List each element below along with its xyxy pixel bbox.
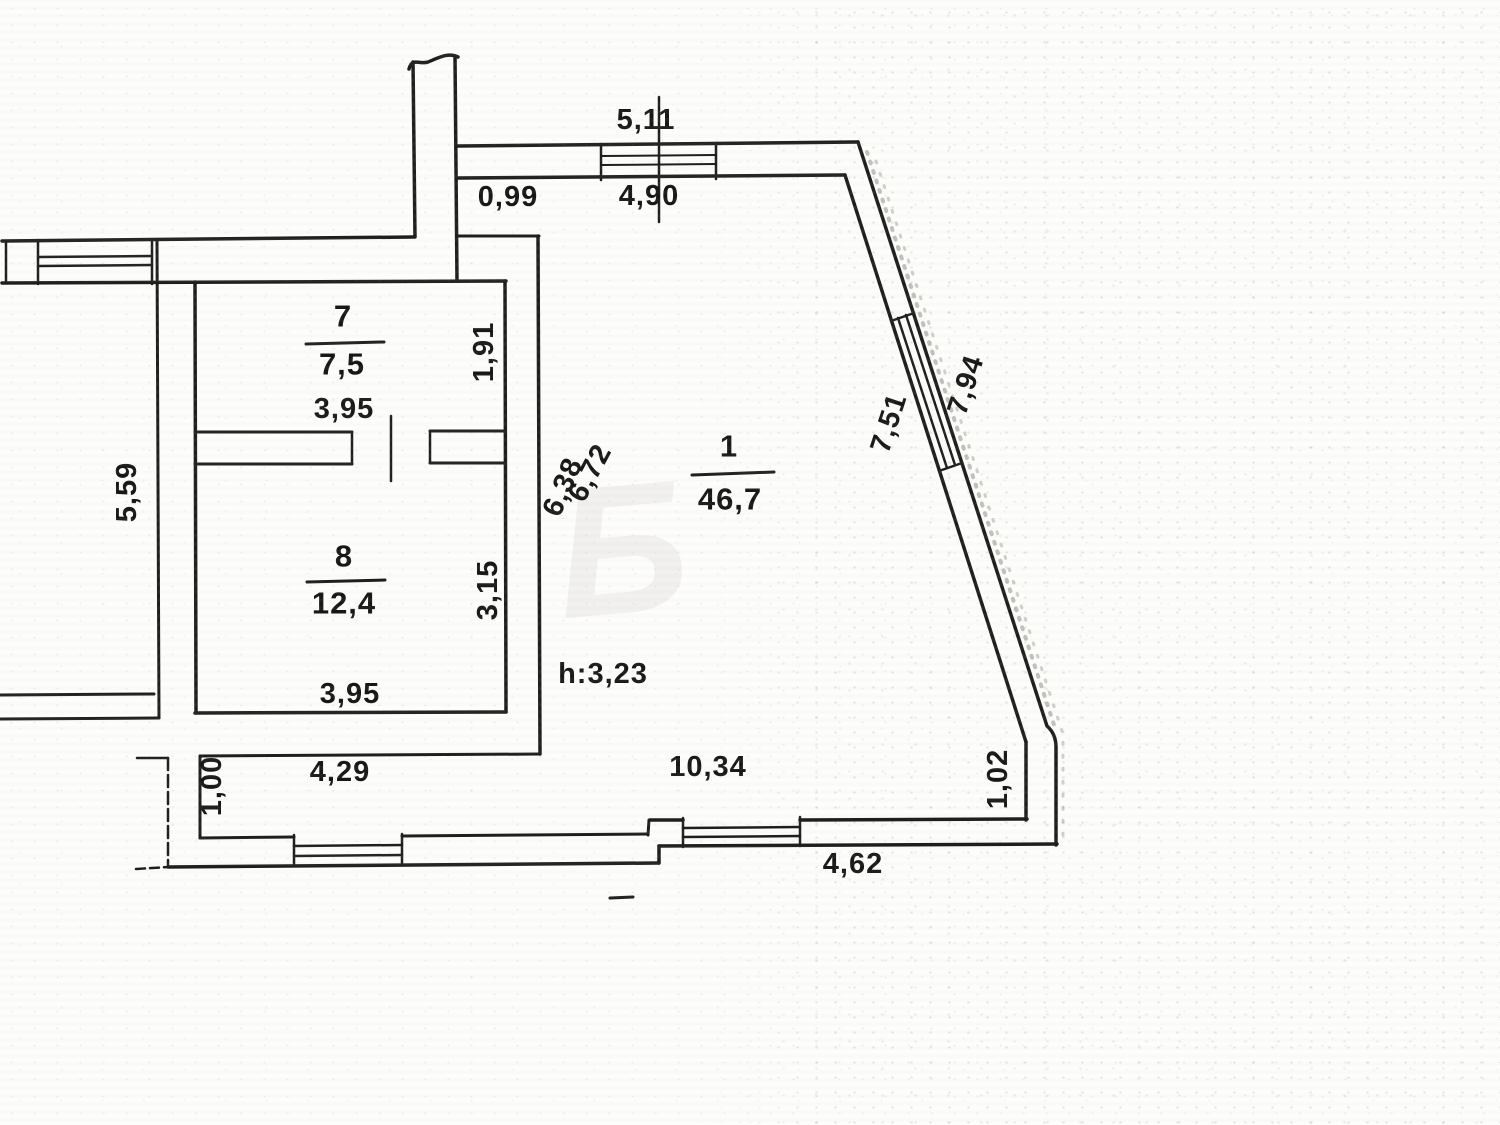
- dimension-label: h:3,23: [558, 658, 648, 690]
- window-glass: [683, 836, 800, 837]
- dimension-label: 3,95: [314, 393, 374, 425]
- outer-wall-top-left: [2, 237, 414, 241]
- dimension-label: 7,51: [864, 389, 913, 456]
- room-fraction-line: [306, 342, 384, 344]
- bottom-inner-left-b: [402, 834, 648, 836]
- dimension-label: 3,15: [472, 560, 504, 620]
- dimension-label: 4,90: [619, 180, 679, 212]
- bottom-inner-right: [800, 819, 1027, 820]
- room-number-label: 7: [334, 299, 352, 334]
- chimney-left: [413, 62, 415, 237]
- dimension-label: 5,59: [111, 462, 143, 522]
- floor-plan-drawing: Б146,777,5812,45,110,994,907,517,941,913…: [0, 0, 1500, 1125]
- room8-bottom-wall: [195, 712, 506, 713]
- inner-wall-top: [2, 281, 506, 283]
- dimension-label: 5,11: [617, 104, 676, 136]
- window-glass: [601, 164, 716, 165]
- neighbor-bottom-inner: [0, 694, 154, 695]
- chimney-right: [455, 56, 457, 281]
- dimension-label: 4,62: [823, 848, 883, 880]
- scan-speckle: [876, 161, 1063, 846]
- room-left-wall: [195, 282, 196, 713]
- bottom-outer-left: [168, 863, 659, 867]
- top-wall-outer: [457, 142, 858, 146]
- neighbor-bottom-outer: [0, 718, 159, 719]
- scan-page: Б146,777,5812,45,110,994,907,517,941,913…: [0, 0, 1500, 1125]
- window-glass: [294, 845, 402, 846]
- west-stub-bottom: [136, 867, 168, 869]
- window-cap: [939, 463, 962, 471]
- window-glass: [38, 256, 152, 257]
- room1-left-wall: [538, 236, 540, 754]
- window-glass: [294, 855, 402, 856]
- dimension-label: 7,94: [941, 351, 990, 418]
- dimension-label: 10,34: [669, 751, 747, 783]
- room-area-label: 7,5: [319, 347, 365, 382]
- room-area-label: 12,4: [312, 586, 376, 621]
- dimension-label: 1,91: [468, 322, 500, 382]
- room-number-label: 8: [335, 539, 353, 574]
- dimension-label: 1,00: [196, 756, 228, 816]
- window-cap: [891, 313, 914, 321]
- window-glass: [38, 265, 152, 266]
- dimension-label: 0,99: [478, 181, 538, 213]
- top-wall-inner: [457, 175, 845, 178]
- window-glass: [683, 827, 800, 828]
- room-right-wall: [505, 281, 506, 712]
- chimney-break-line: [409, 55, 458, 69]
- bottom-outer-right: [659, 844, 1057, 846]
- party-wall-left: [157, 241, 159, 718]
- stray-dash: [610, 897, 633, 898]
- dimension-label: 4,29: [310, 756, 370, 788]
- room-fraction-line: [307, 580, 385, 582]
- room-number-label: 1: [720, 429, 738, 464]
- room-fraction-line: [692, 472, 774, 475]
- dimension-label: 3,95: [320, 678, 380, 710]
- dimension-label: 1,02: [982, 749, 1014, 809]
- diagonal-inner: [845, 175, 1026, 742]
- bottom-inner-left-a: [200, 837, 294, 838]
- window-glass: [601, 155, 716, 156]
- room-area-label: 46,7: [698, 482, 762, 517]
